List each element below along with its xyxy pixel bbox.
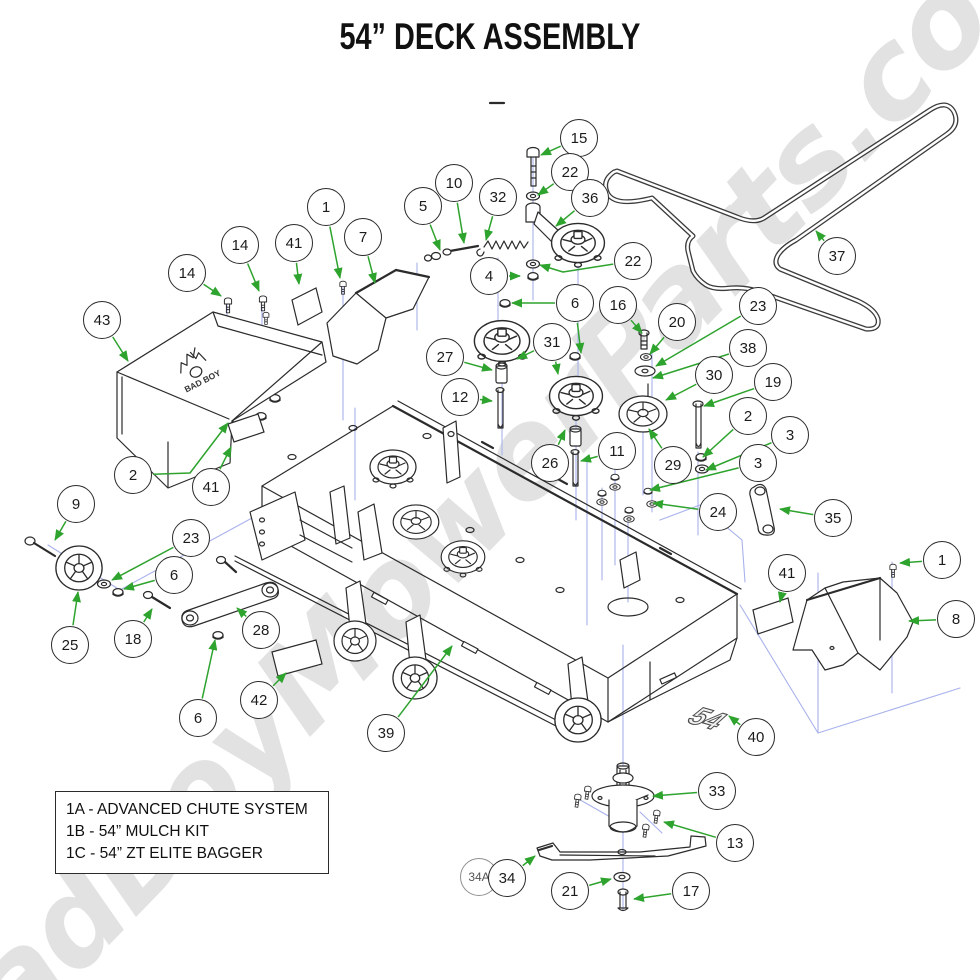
callout-30: 30 [695,356,733,394]
leader-16 [631,320,642,333]
leader-26 [558,430,565,445]
deck-size-decal: 54 [682,701,733,735]
callout-43: 43 [83,301,121,339]
leader-22 [538,184,554,195]
leader-17 [634,894,671,899]
callout-26: 26 [531,444,569,482]
callout-6: 6 [556,284,594,322]
leader-31 [556,362,558,374]
callout-28: 28 [242,611,280,649]
callout-32: 32 [479,178,517,216]
leader-41 [296,263,299,284]
callout-23: 23 [739,287,777,325]
leader-13 [664,822,716,837]
leader-32 [486,216,493,240]
callout-1: 1 [307,188,345,226]
leader-24 [653,503,698,509]
callout-3: 3 [739,444,777,482]
leader-10 [457,203,464,243]
callout-11: 11 [598,432,636,470]
leader-33 [653,793,697,796]
parts-diagram-page: BadBoyMowerParts.com [0,0,980,980]
callout-6: 6 [179,699,217,737]
callout-10: 10 [435,164,473,202]
callout-39: 39 [367,714,405,752]
rear-deflector [793,578,913,670]
leader-11 [581,456,598,461]
callout-20: 20 [658,303,696,341]
leader-14 [248,263,259,291]
leader-12 [480,399,492,401]
callout-41: 41 [768,554,806,592]
callout-12: 12 [441,378,479,416]
leader-27 [464,362,492,370]
callout-4: 4 [470,257,508,295]
callout-21: 21 [551,872,589,910]
leader-43 [113,337,128,361]
callout-16: 16 [599,286,637,324]
callout-37: 37 [818,237,856,275]
spindle-assembly [573,763,660,838]
callout-41: 41 [275,224,313,262]
callout-18: 18 [114,620,152,658]
leader-30 [666,384,696,400]
callout-40: 40 [737,718,775,756]
callout-33: 33 [698,772,736,810]
callout-27: 27 [426,338,464,376]
leader-15 [541,146,561,155]
callout-29: 29 [654,446,692,484]
legend-item-1a: 1A - ADVANCED CHUTE SYSTEM [66,799,318,821]
leader-25 [73,592,78,625]
leader-6 [202,640,215,698]
legend-box: 1A - ADVANCED CHUTE SYSTEM 1B - 54” MULC… [55,791,329,874]
leader-40 [729,716,740,725]
callout-2: 2 [729,397,767,435]
leader-14 [204,284,221,296]
callout-7: 7 [344,218,382,256]
callout-23: 23 [172,519,210,557]
callout-14: 14 [168,254,206,292]
discharge-chute: BAD BOY [117,312,326,488]
callout-35: 35 [814,499,852,537]
callout-25: 25 [51,626,89,664]
callout-24: 24 [699,493,737,531]
deck-belt [606,105,956,329]
deflector-link [750,484,775,535]
callout-31: 31 [533,323,571,361]
callout-22: 22 [614,242,652,280]
callout-2: 2 [114,456,152,494]
page-title: 54” DECK ASSEMBLY [0,16,980,58]
leader-18 [144,609,152,622]
deck-spindle-pulleys [370,450,485,577]
leader-34 [523,856,535,866]
leader-37 [816,231,824,241]
callout-15: 15 [560,119,598,157]
legend-item-1c: 1C - 54” ZT ELITE BAGGER [66,843,318,865]
callout-14: 14 [221,226,259,264]
leader-22 [540,264,613,272]
leader-7 [368,256,375,283]
leader-5 [430,225,440,250]
callout-34: 34 [488,859,526,897]
callout-9: 9 [57,485,95,523]
spring-group [425,241,529,261]
callout-8: 8 [937,600,975,638]
callout-17: 17 [672,872,710,910]
leader-35 [780,509,813,515]
legend-item-1b: 1B - 54” MULCH KIT [66,821,318,843]
callout-41: 41 [192,468,230,506]
leader-1 [900,561,922,563]
leader-20 [650,337,664,354]
leader-2 [703,429,733,457]
callout-13: 13 [716,824,754,862]
callout-3: 3 [771,416,809,454]
callout-6: 6 [155,556,193,594]
leader-8 [909,620,936,621]
leader-21 [589,879,611,885]
callout-38: 38 [729,329,767,367]
leader-9 [55,521,66,540]
callout-5: 5 [404,187,442,225]
callout-19: 19 [754,363,792,401]
leader-1 [330,227,340,278]
callout-42: 42 [240,681,278,719]
caster-wheel-group [25,537,123,596]
callout-1: 1 [923,541,961,579]
leader-29 [649,429,662,448]
callout-36: 36 [571,179,609,217]
